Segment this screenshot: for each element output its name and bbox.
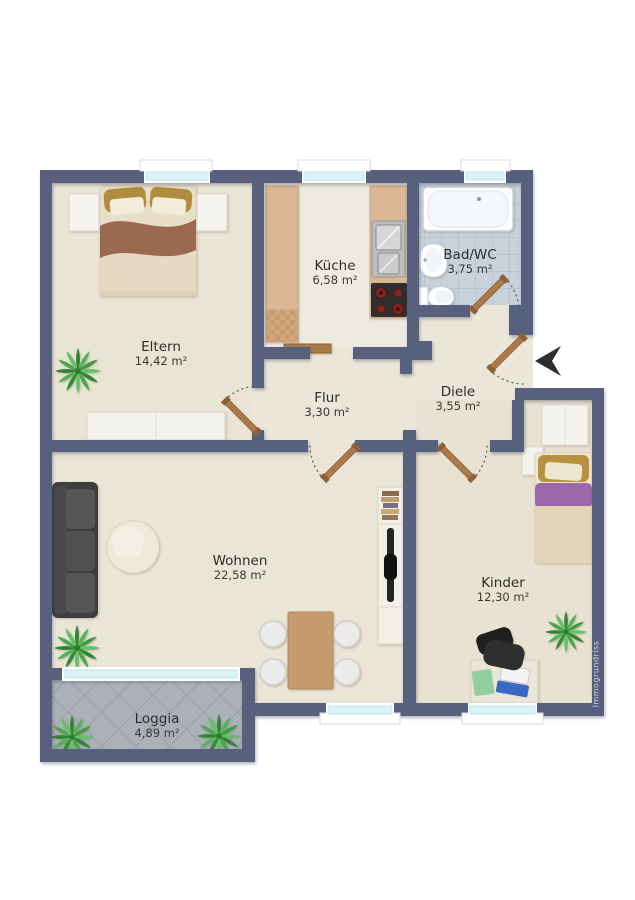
window-sill (298, 160, 370, 171)
room-name: Küche (314, 258, 355, 274)
stove (371, 283, 407, 317)
window-bad (464, 170, 506, 183)
toilet (419, 287, 454, 308)
room-area: 12,30 m² (477, 590, 529, 604)
nightstand-left (69, 194, 99, 231)
room-name: Kinder (481, 575, 525, 591)
window-sill (461, 160, 510, 171)
room-name: Eltern (141, 339, 181, 355)
room-name: Diele (441, 384, 476, 400)
room-area: 4,89 m² (134, 726, 179, 740)
window-eltern (144, 170, 210, 183)
window-kueche (302, 170, 366, 183)
room-area: 6,58 m² (312, 273, 357, 287)
sofa (52, 482, 98, 618)
room-label-eltern: Eltern 14,42 m² (135, 339, 187, 368)
room-area: 3,75 m² (447, 262, 492, 276)
desk-pad (471, 669, 494, 697)
dresser (87, 412, 225, 440)
nightstand-right (197, 194, 227, 231)
window-kinder (468, 703, 537, 716)
floorplan-canvas: Eltern 14,42 m² Küche 6,58 m² Bad/WC 3,7… (0, 0, 635, 900)
room-area: 22,58 m² (214, 568, 266, 582)
window-sill (140, 160, 212, 171)
room-name: Loggia (135, 711, 180, 727)
window-wohnen (326, 703, 394, 716)
entrance-arrow-icon (535, 346, 561, 376)
kitchen-sink (372, 221, 405, 277)
room-label-kinder: Kinder 12,30 m² (477, 575, 529, 604)
kids-bed (535, 453, 592, 563)
kitchen-counter-left (266, 186, 298, 342)
room-area: 14,42 m² (135, 354, 187, 368)
room-label-bad: Bad/WC 3,75 m² (443, 247, 496, 276)
window-loggia-door (62, 667, 240, 681)
room-name: Bad/WC (443, 247, 496, 263)
coffee-table (107, 521, 159, 573)
watermark-text: Immogrundriss (592, 641, 601, 708)
dining-table (288, 612, 333, 689)
room-area: 3,55 m² (435, 399, 480, 413)
room-area: 3,30 m² (304, 405, 349, 419)
floorplan-page: Eltern 14,42 m² Küche 6,58 m² Bad/WC 3,7… (0, 0, 635, 900)
room-name: Wohnen (213, 553, 268, 569)
room-name: Flur (314, 390, 340, 406)
books (381, 491, 399, 520)
media-shelf (378, 487, 403, 644)
chair (260, 621, 286, 647)
chair (334, 659, 360, 685)
bathtub (423, 187, 513, 231)
room-label-wohnen: Wohnen 22,58 m² (213, 553, 268, 582)
chair (260, 659, 286, 685)
chair (334, 621, 360, 647)
room-label-loggia: Loggia 4,89 m² (134, 711, 179, 740)
room-label-kueche: Küche 6,58 m² (312, 258, 357, 287)
room-label-diele: Diele 3,55 m² (435, 384, 480, 413)
double-bed (100, 186, 196, 296)
